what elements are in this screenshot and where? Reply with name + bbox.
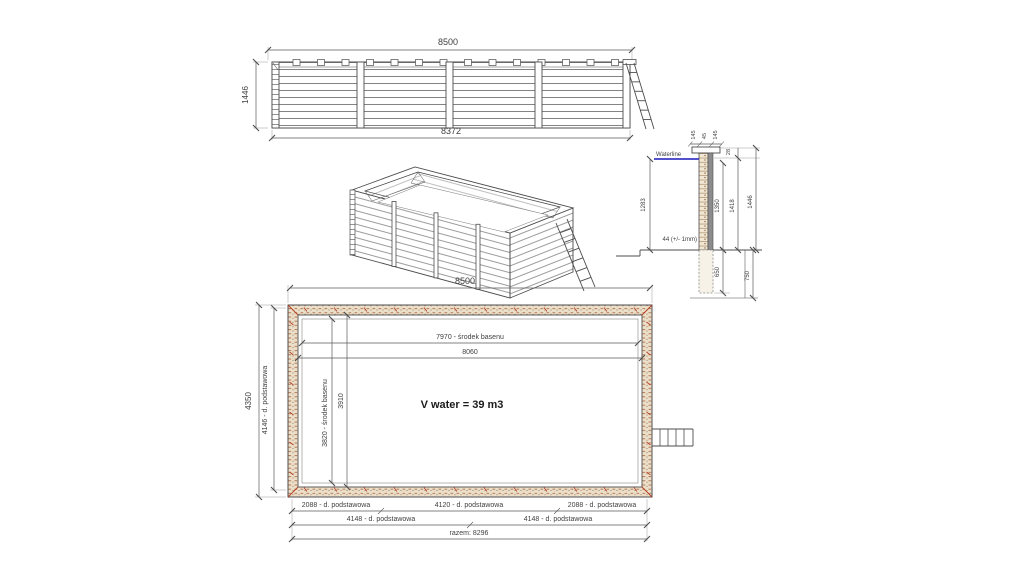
plan-height-base-dim: 4146 - d. podstawowa [262, 366, 269, 435]
base-dim-half-right: 4148 - d. podstawowa [524, 516, 593, 523]
wall-dim-1418: 1418 [730, 199, 736, 213]
plan-inner-width-dim: 8060 [462, 349, 478, 356]
wall-cap-section [692, 147, 720, 153]
bottom-plank-dim: 44 (+/- 1mm) [662, 237, 697, 243]
elevation-view: 8500 1446 8372 [241, 37, 654, 140]
base-dim-right: 2088 - d. podstawowa [568, 502, 637, 509]
cap-dim-right: 145 [713, 130, 719, 139]
water-depth-dim: 1283 [641, 198, 647, 212]
isometric-corner-post [350, 190, 355, 255]
wall-post [357, 62, 364, 128]
plan-view: 8500 7970 - środek basenu 8060 3820 - śr… [244, 276, 693, 541]
pit-depth-dim: 750 [745, 270, 751, 281]
wall-planks-section [699, 153, 708, 250]
cap-dim-left: 145 [691, 130, 697, 139]
corner-post-left [272, 62, 279, 128]
plan-width-top-dim: 8500 [455, 276, 475, 286]
wall-dim-1446: 1446 [748, 195, 754, 209]
elevation-height-dim: 1446 [241, 86, 250, 104]
wall-dim-1350: 1350 [715, 199, 721, 213]
plan-inner-height-dim: 3910 [338, 393, 345, 409]
ladder-plan [652, 429, 693, 446]
water-volume-label: V water = 39 m3 [421, 399, 504, 411]
base-dim-total: razem: 8296 [450, 530, 489, 537]
base-dim-left: 2088 - d. podstawowa [302, 502, 371, 509]
waterline-label: Waterline [656, 152, 682, 158]
elevation-width-bottom-dim: 8372 [441, 126, 461, 136]
wall-post [535, 62, 542, 128]
plan-height-total-dim: 4350 [244, 392, 253, 410]
wall-post [446, 62, 453, 128]
plan-center-vertical-dim: 3820 - środek basenu [322, 379, 329, 447]
pool-technical-drawing: 8500 1446 8372 [0, 0, 1024, 576]
base-dim-center: 4120 - d. podstawowa [435, 502, 504, 509]
base-dim-half-left: 4148 - d. podstawowa [347, 516, 416, 523]
cap-dim-mid: 45 [702, 133, 708, 139]
elevation-width-top-dim: 8500 [438, 37, 458, 47]
post-below-dim: 650 [715, 266, 721, 277]
section-view: 145 45 145 Waterline 1283 44 (+/- 1mm) 1… [616, 130, 762, 298]
plan-center-horizontal-dim: 7970 - środek basenu [436, 334, 504, 341]
cap-height-dim: 28 [726, 149, 732, 155]
post-below-ground [699, 250, 713, 293]
wall-liner-section [708, 153, 713, 250]
